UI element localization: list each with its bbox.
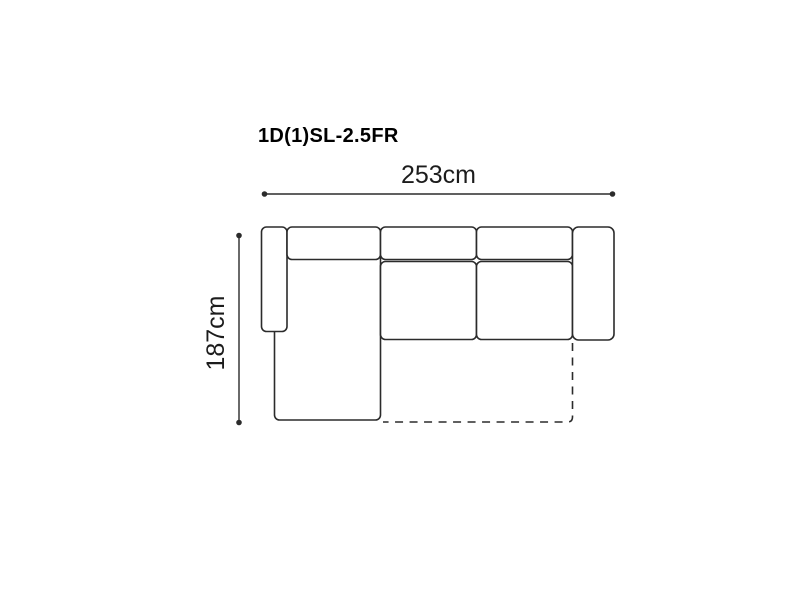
sofa-dimension-diagram: 1D(1)SL-2.5FR 253cm 187cm	[0, 0, 800, 600]
right-armrest-outline	[573, 227, 615, 340]
center-backrest-outline	[381, 227, 477, 260]
fold-out-dashed-outline	[383, 343, 573, 422]
right-seat-outline	[477, 262, 573, 340]
model-code-title: 1D(1)SL-2.5FR	[258, 125, 399, 148]
center-seat-outline	[381, 262, 477, 340]
left-armrest-outline	[262, 227, 288, 332]
depth-dimension-label: 187cm	[203, 233, 229, 433]
depth-dimension-top-dot	[236, 233, 242, 239]
right-backrest-outline	[477, 227, 573, 260]
chaise-seat-outline	[275, 248, 381, 420]
chaise-backrest-outline	[287, 227, 381, 260]
width-dimension-label: 253cm	[263, 161, 614, 190]
width-dimension-right-dot	[610, 191, 616, 197]
width-dimension-left-dot	[262, 191, 268, 197]
depth-dimension-bottom-dot	[236, 420, 242, 426]
sofa-outline-drawing	[0, 0, 800, 600]
